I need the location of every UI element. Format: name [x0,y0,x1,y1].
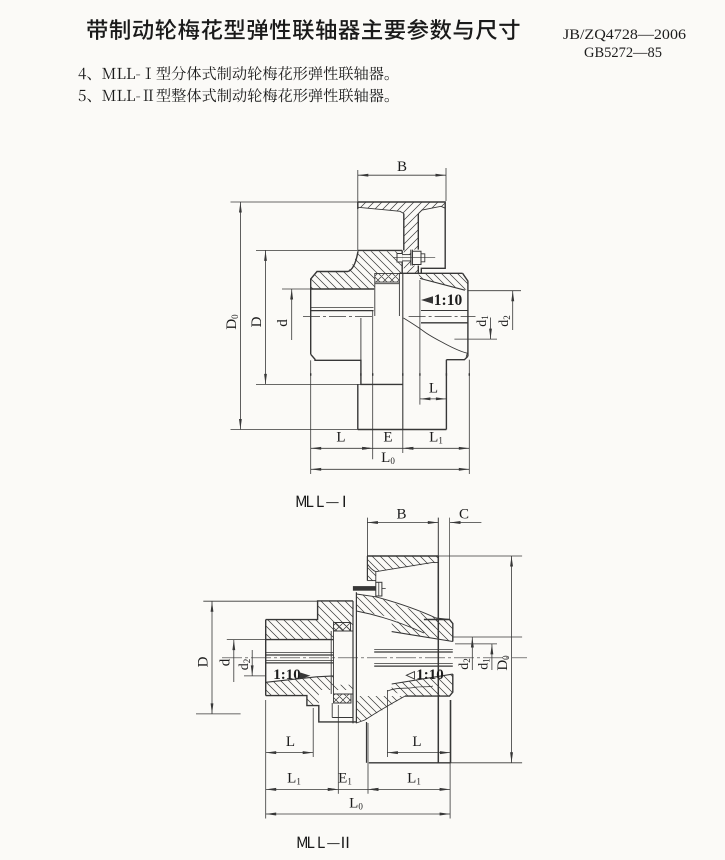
svg-text:L: L [286,734,295,750]
svg-text:1:10: 1:10 [416,667,444,683]
svg-text:L: L [429,381,438,397]
svg-text:d: d [275,319,291,327]
svg-text:L: L [412,734,421,750]
svg-text:B: B [397,159,407,175]
svg-text:E: E [383,430,392,446]
svg-text:L: L [336,430,345,446]
svg-text:1:10: 1:10 [273,667,301,683]
svg-text:1:10: 1:10 [434,292,463,309]
svg-text:C: C [459,507,469,523]
svg-text:GB5272—85: GB5272—85 [584,45,662,61]
svg-text:B: B [396,507,406,523]
svg-text:D: D [196,656,212,667]
svg-text:D: D [249,316,265,327]
svg-text:JB/ZQ4728—2006: JB/ZQ4728—2006 [563,27,687,43]
svg-text:d: d [217,658,233,666]
